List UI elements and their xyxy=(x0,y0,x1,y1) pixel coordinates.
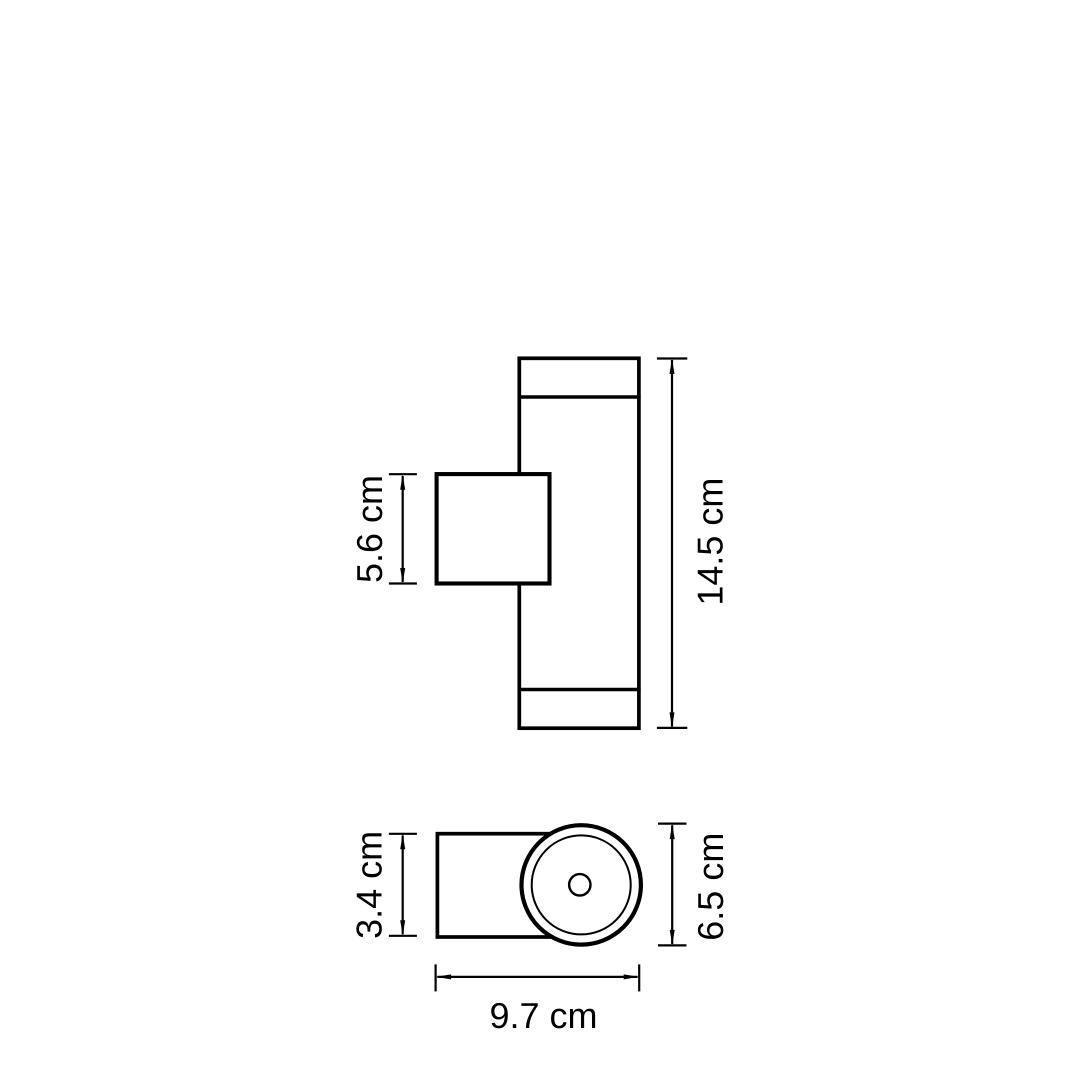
svg-text:5.6 cm: 5.6 cm xyxy=(349,475,390,583)
svg-text:14.5 cm: 14.5 cm xyxy=(690,478,731,606)
svg-text:3.4 cm: 3.4 cm xyxy=(349,831,390,939)
svg-text:9.7 cm: 9.7 cm xyxy=(489,995,597,1036)
svg-text:6.5 cm: 6.5 cm xyxy=(690,833,731,941)
